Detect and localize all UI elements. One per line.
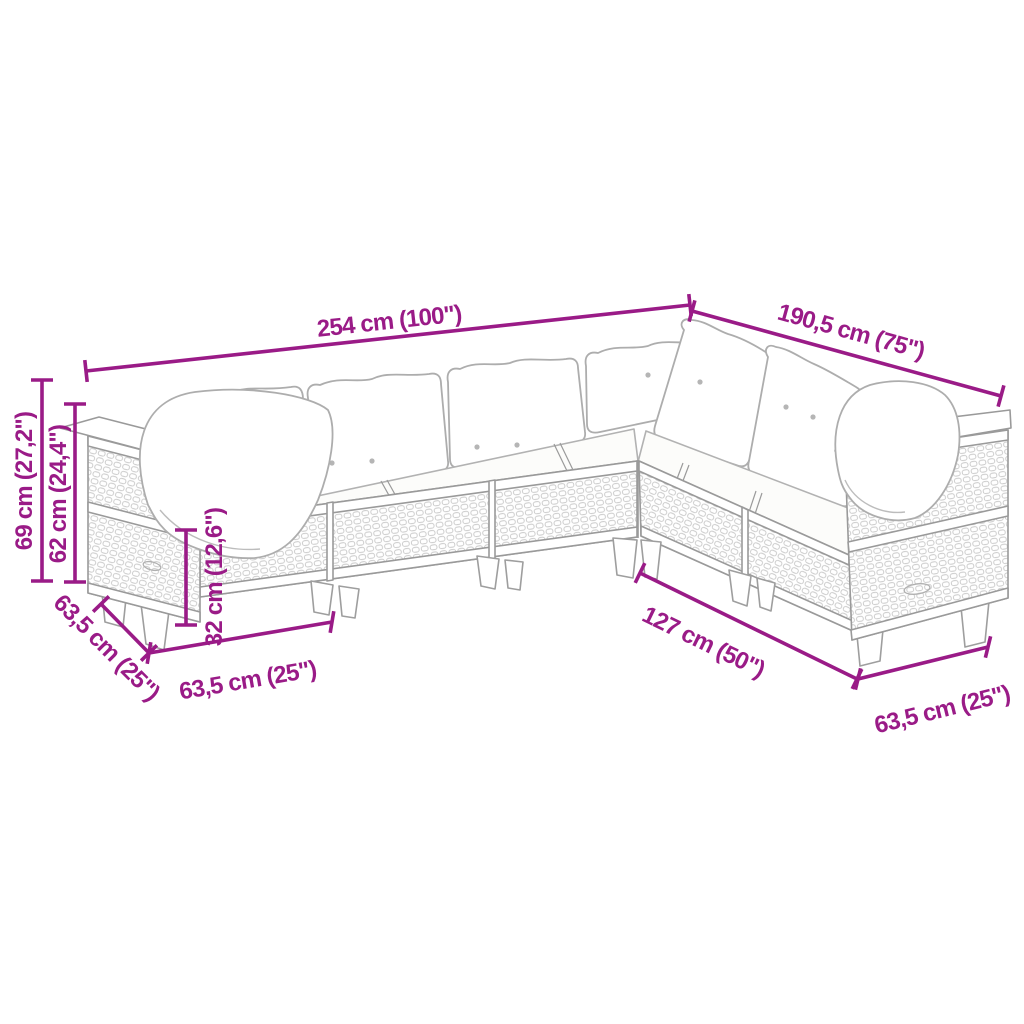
dim-label: 63,5 cm (25")	[872, 680, 1013, 739]
dim-label: 127 cm (50")	[638, 601, 769, 683]
product-dimension-diagram: 254 cm (100") 190,5 cm (75") 69 cm (27,2…	[0, 0, 1024, 1024]
dim-label: 32 cm (12,6")	[201, 508, 228, 646]
dim-label: 69 cm (27,2")	[11, 412, 38, 550]
dim-label: 62 cm (24,4")	[45, 425, 72, 563]
diagram-svg: 254 cm (100") 190,5 cm (75") 69 cm (27,2…	[0, 0, 1024, 1024]
dim-label: 63,5 cm (25")	[177, 656, 318, 706]
